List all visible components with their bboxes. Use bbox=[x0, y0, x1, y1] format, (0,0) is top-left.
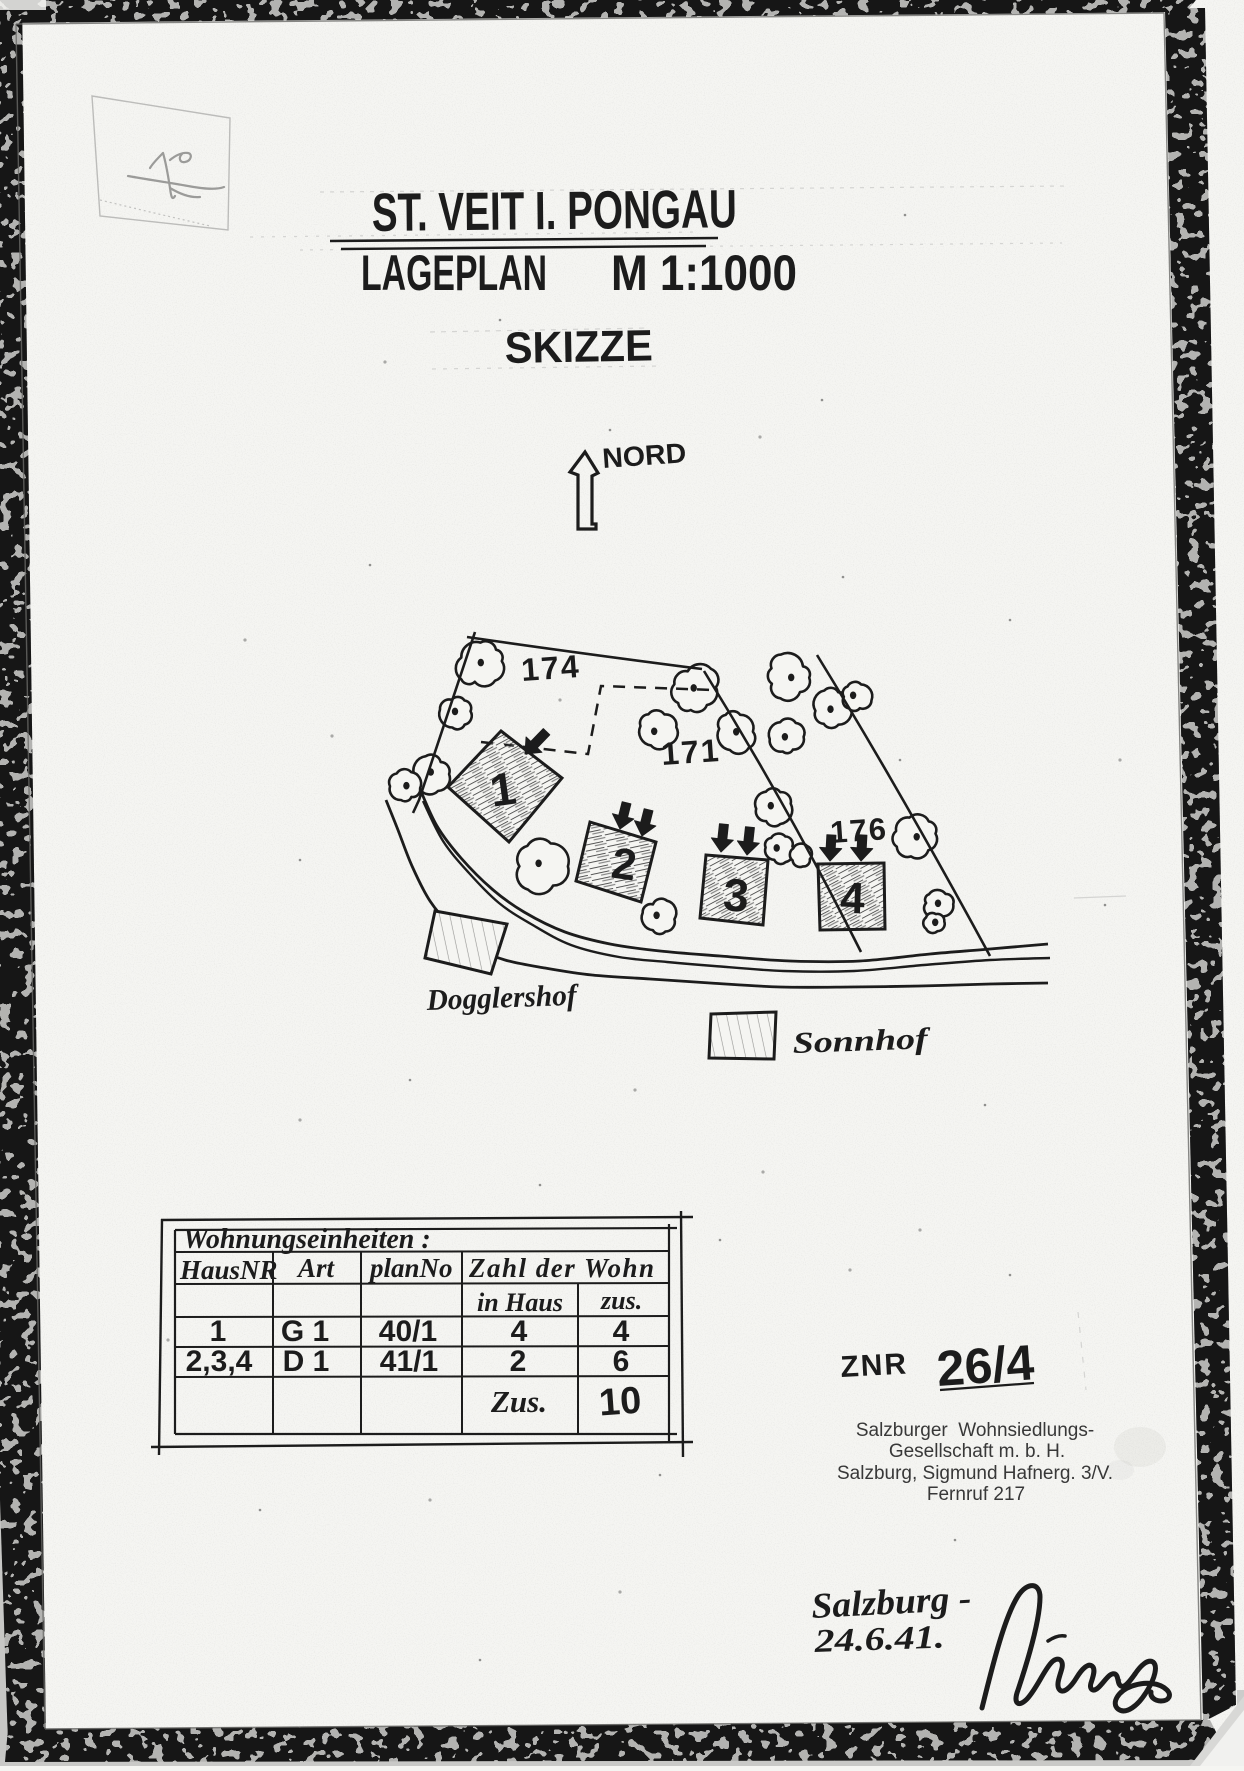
svg-text:HausNR: HausNR bbox=[179, 1255, 278, 1285]
svg-text:40/1: 40/1 bbox=[379, 1315, 437, 1348]
svg-text:2,3,4: 2,3,4 bbox=[186, 1345, 253, 1378]
svg-text:2: 2 bbox=[510, 1345, 527, 1378]
svg-text:SKIZZE: SKIZZE bbox=[504, 321, 653, 373]
svg-text:Zahl der Wohn: Zahl der Wohn bbox=[468, 1253, 656, 1283]
svg-text:Wohnungseinheiten :: Wohnungseinheiten : bbox=[183, 1224, 431, 1255]
svg-text:Dogglershof: Dogglershof bbox=[425, 979, 580, 1017]
svg-text:in Haus: in Haus bbox=[477, 1288, 563, 1317]
svg-text:41/1: 41/1 bbox=[380, 1345, 438, 1378]
svg-text:24.6.41.: 24.6.41. bbox=[813, 1619, 945, 1660]
svg-text:LAGEPLAN: LAGEPLAN bbox=[361, 245, 547, 301]
svg-text:NORD: NORD bbox=[601, 437, 687, 474]
svg-text:6: 6 bbox=[613, 1345, 630, 1378]
svg-text:1: 1 bbox=[210, 1315, 227, 1348]
svg-text:Salzburg -: Salzburg - bbox=[810, 1578, 972, 1626]
svg-text:Salzburg, Sigmund Hafnerg. 3/V: Salzburg, Sigmund Hafnerg. 3/V. bbox=[837, 1463, 1113, 1484]
svg-text:Fernruf 217: Fernruf 217 bbox=[927, 1484, 1025, 1505]
svg-text:G 1: G 1 bbox=[281, 1315, 329, 1348]
svg-text:Art: Art bbox=[296, 1253, 336, 1283]
svg-text:M 1:1000: M 1:1000 bbox=[611, 245, 797, 301]
svg-text:171: 171 bbox=[660, 732, 722, 772]
svg-text:Zus.: Zus. bbox=[490, 1384, 547, 1419]
svg-text:planNo: planNo bbox=[368, 1253, 453, 1283]
svg-text:4: 4 bbox=[511, 1315, 528, 1348]
svg-text:Gesellschaft m. b. H.: Gesellschaft m. b. H. bbox=[889, 1441, 1065, 1462]
svg-text:zus.: zus. bbox=[600, 1286, 642, 1315]
svg-text:ZNR: ZNR bbox=[840, 1347, 909, 1383]
svg-text:174: 174 bbox=[520, 648, 582, 688]
svg-text:ST. VEIT I. PONGAU: ST. VEIT I. PONGAU bbox=[371, 179, 737, 243]
svg-text:3: 3 bbox=[722, 868, 751, 922]
svg-text:Salzburger Wohnsiedlungs-: Salzburger Wohnsiedlungs- bbox=[856, 1420, 1094, 1441]
svg-text:D 1: D 1 bbox=[283, 1345, 330, 1378]
svg-text:4: 4 bbox=[613, 1315, 630, 1348]
svg-text:Sonnhof: Sonnhof bbox=[792, 1022, 932, 1060]
svg-text:176: 176 bbox=[829, 811, 889, 850]
svg-text:10: 10 bbox=[598, 1380, 643, 1425]
